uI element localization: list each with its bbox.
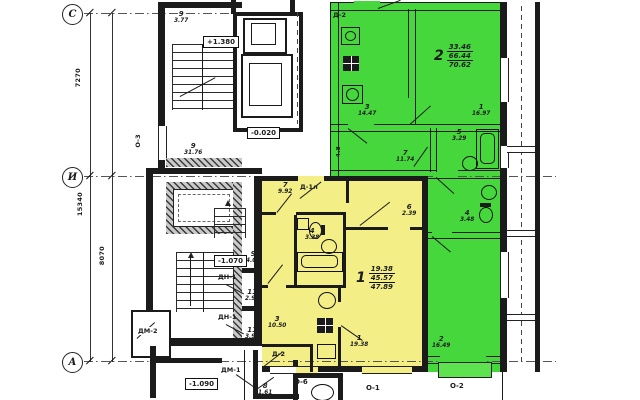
stove	[317, 318, 333, 333]
wall-segment	[262, 285, 268, 288]
door-label-dm1: ДМ-1	[221, 366, 240, 374]
stairs-arrow-up	[188, 252, 194, 258]
wall-segment	[262, 212, 276, 215]
room-label-small: 4.8	[336, 146, 342, 157]
kitchen-sink-bowl	[345, 31, 356, 41]
room-label: 7 11.74	[396, 149, 414, 163]
room-label: 6 2.39	[402, 203, 416, 217]
elevator-cab-large	[249, 63, 282, 106]
wall-segment	[430, 128, 437, 172]
room-label: 11 3.91	[245, 326, 259, 340]
room-label: 7 9.92	[278, 181, 292, 195]
apartment-total-area: 70.62	[447, 61, 473, 69]
apartment-living-area: 19.38	[369, 265, 395, 274]
wall-segment	[262, 344, 312, 347]
dimension-total: 15340	[76, 192, 84, 216]
loggia-dashed-line	[521, 6, 522, 366]
axis-leader-line	[502, 372, 503, 400]
wall-segment	[346, 227, 388, 230]
elevator-dashed-edge	[297, 12, 298, 124]
apartment-total-area: 47.89	[369, 283, 395, 291]
axis-label-o1: О-1	[366, 384, 380, 392]
axis-label-o6: О-6	[294, 378, 308, 386]
apartment-number: 1	[356, 270, 366, 286]
door-label-dn1: ДН-1	[218, 273, 236, 281]
room-label: 2 16.49	[432, 335, 450, 349]
toilet	[479, 207, 493, 223]
window	[500, 252, 509, 298]
wall-segment	[290, 0, 295, 14]
dimension-line-outer	[90, 13, 91, 362]
wall-segment	[310, 344, 313, 372]
elevation-mark: +1.380	[203, 36, 239, 48]
apartment-usable-area: 66.44	[447, 52, 473, 61]
apartment2-summary: 2 33.46 66.44 70.62	[434, 43, 473, 69]
door-label-dn1: ДН-1	[218, 313, 236, 321]
kitchen-sink	[318, 292, 336, 309]
room-label: 1 16.97	[472, 103, 490, 117]
room-label: 5 3.29	[452, 128, 466, 142]
door-opening	[298, 176, 324, 181]
door-label-d2-entry: Д-2	[272, 350, 285, 358]
axis-circle-i: И	[62, 167, 83, 188]
stairs-divider	[202, 44, 203, 110]
door-label-d2-top: Д-2	[333, 11, 346, 19]
toilet-tank	[321, 225, 325, 235]
elevator-cab-small	[251, 23, 276, 45]
loggia-window-bar	[507, 146, 535, 153]
loggia-window-bar	[507, 230, 535, 237]
wall-segment	[343, 215, 346, 288]
window	[500, 58, 509, 102]
door-opening	[348, 124, 374, 130]
stove	[343, 56, 359, 71]
wall-stub	[242, 306, 256, 311]
room-label: 11 2.94	[245, 288, 259, 302]
stairs-small	[214, 208, 246, 238]
room-label: 4 3.38	[305, 227, 319, 241]
axis-label-o3: О-3	[134, 134, 142, 148]
wall-segment	[286, 285, 346, 288]
wall-segment	[535, 2, 540, 372]
room-label: 4 3.48	[460, 209, 474, 223]
bathtub-inner	[480, 133, 495, 164]
wall-segment	[296, 212, 346, 215]
door-opening	[436, 170, 458, 177]
room-label: 9 3.77	[174, 10, 188, 24]
door-opening	[354, 1, 380, 10]
axis-leader-line	[244, 350, 245, 400]
wall-segment	[231, 0, 236, 14]
balcony-tambour	[438, 362, 492, 378]
stairs-upper	[172, 44, 236, 110]
wall-segment	[422, 176, 428, 372]
kitchen-appliance	[317, 344, 336, 359]
stairs-arrow-line	[190, 258, 191, 306]
stairs-divider	[203, 252, 204, 312]
window	[158, 126, 167, 160]
door-label-d1l: Д-1л	[300, 183, 318, 191]
wall-segment	[338, 373, 343, 400]
vent-shaft-hatch	[166, 158, 242, 167]
wall-segment	[330, 170, 506, 179]
wall-segment	[338, 288, 341, 302]
wall-segment	[338, 327, 341, 366]
apartment1-summary: 1 19.38 45.57 47.89	[356, 265, 395, 291]
apartment-living-area: 33.46	[447, 43, 473, 52]
wall-segment	[410, 227, 426, 230]
room-label: 3 14.47	[358, 103, 376, 117]
door-opening	[432, 232, 452, 237]
window	[362, 366, 412, 374]
axis-label-o2: О-2	[450, 382, 464, 390]
floor-plan-canvas: 7270 15340 8070 С И А	[0, 0, 640, 400]
axis-circle-c: С	[62, 4, 83, 25]
dimension-line-inner	[112, 13, 113, 362]
axis-circle-a: А	[62, 352, 83, 373]
elevation-mark: -0.020	[247, 127, 280, 139]
loggia-window-bar	[507, 314, 535, 321]
stairs-arrow-up	[225, 200, 231, 206]
wall-segment	[146, 168, 153, 314]
dimension-upper: 7270	[74, 68, 82, 87]
column-circle	[311, 384, 334, 400]
sink	[481, 185, 497, 200]
wall-segment	[154, 358, 222, 363]
room-label: 1 19.38	[350, 334, 368, 348]
room-label: 9 4.07	[246, 250, 260, 264]
room-label: 9 31.76	[184, 142, 202, 156]
wall-segment	[146, 168, 262, 174]
door-label-dm2: ДМ-2	[138, 327, 157, 335]
elevation-mark: -1.070	[214, 255, 247, 267]
apartment-number: 2	[434, 48, 444, 64]
room-label: 8 1.61	[258, 382, 272, 396]
wall-segment	[346, 181, 349, 203]
elevation-mark: -1.090	[185, 378, 218, 390]
sink	[462, 156, 478, 171]
wall-segment	[150, 346, 156, 398]
fridge-circle	[346, 88, 359, 101]
apartment-usable-area: 45.57	[369, 274, 395, 283]
entry-door-opening	[270, 366, 296, 374]
bathtub-inner	[301, 255, 338, 268]
wall-stub	[242, 268, 256, 273]
room-label: 3 10.50	[268, 315, 286, 329]
dimension-lower: 8070	[98, 246, 106, 265]
